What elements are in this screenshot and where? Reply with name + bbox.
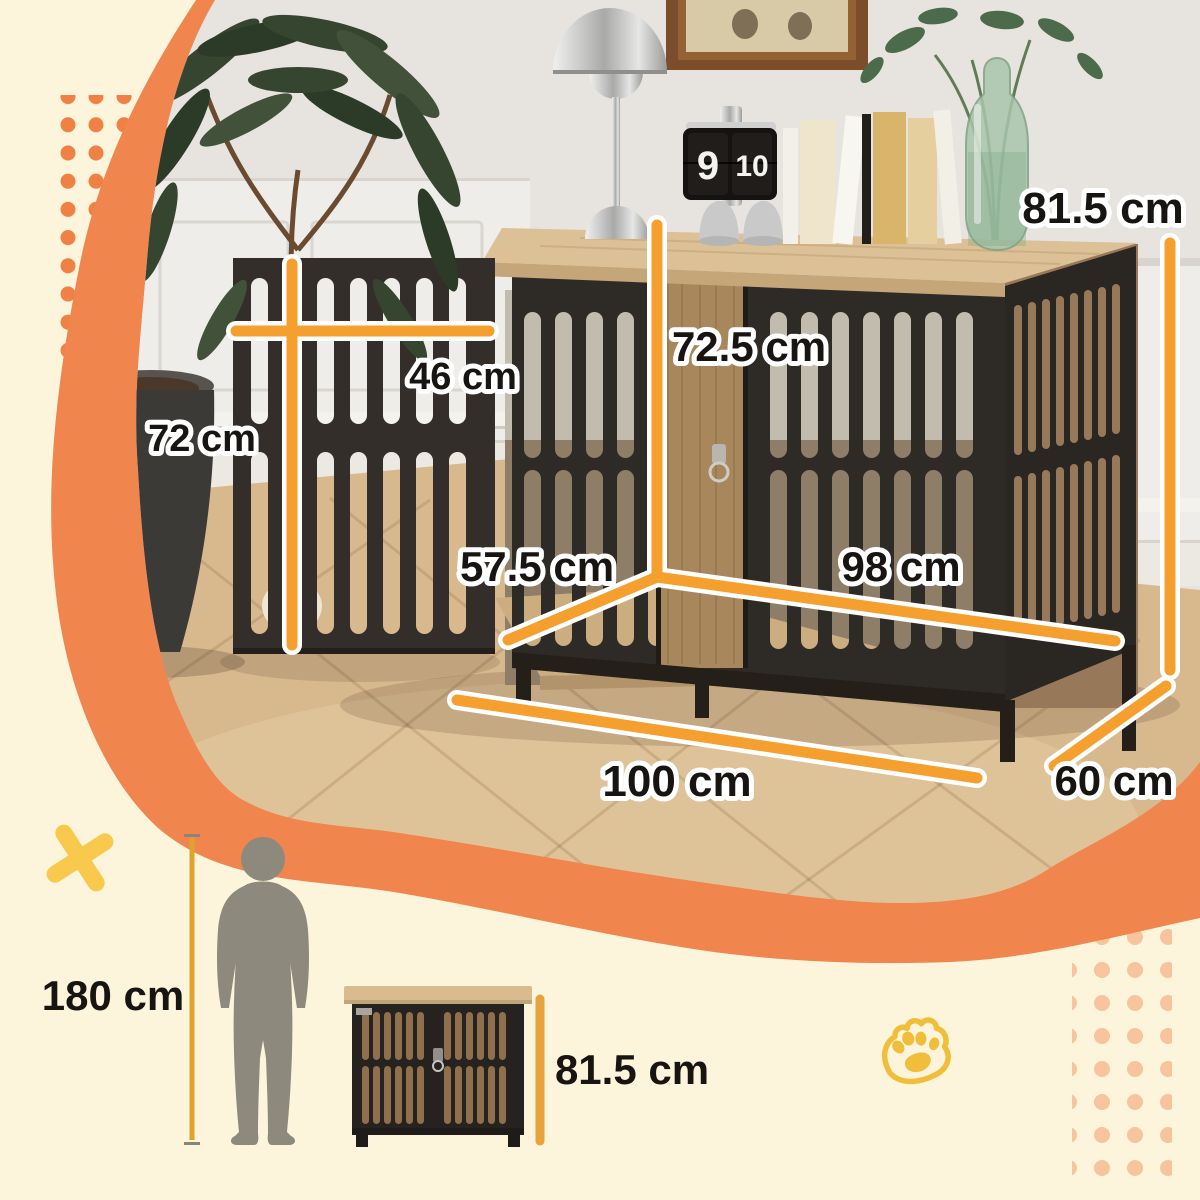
label-product-height: 81.5 cm (555, 1046, 709, 1093)
label-interior-width: 98 cm (841, 543, 960, 590)
clock-hour: 9 (697, 144, 719, 188)
product-dimensions-infographic: 9 10 (0, 0, 1200, 1200)
label-overall-height: 81.5 cm (1022, 184, 1183, 233)
label-person-height: 180 cm (42, 972, 184, 1019)
product-front-thumbnail (344, 986, 532, 1147)
label-overall-width: 100 cm (602, 757, 751, 806)
door-latch (712, 444, 726, 464)
open-door-bottom-edge (233, 648, 495, 654)
person-line-top-tick (184, 834, 200, 837)
person-line-bottom-tick (184, 1142, 200, 1145)
label-door-height: 72 cm (148, 418, 256, 460)
label-door-width: 46 cm (409, 356, 517, 398)
infographic-svg: 9 10 (0, 0, 1200, 1200)
label-interior-depth: 57.5 cm (460, 543, 614, 590)
label-interior-height: 72.5 cm (672, 323, 826, 370)
picture-frame (666, 0, 868, 70)
label-overall-depth: 60 cm (1054, 757, 1173, 804)
clock-minute: 10 (735, 150, 768, 183)
